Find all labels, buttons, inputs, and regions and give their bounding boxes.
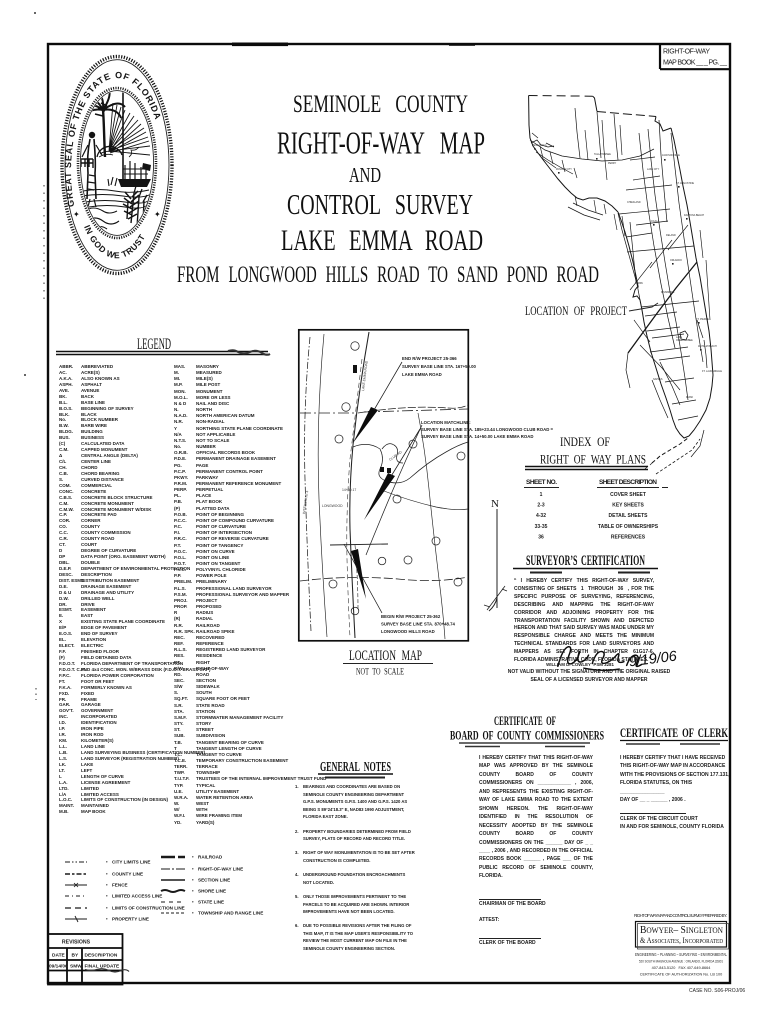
svg-text:RIGHT-OF-WAY LINE: RIGHT-OF-WAY LINE — [198, 867, 243, 872]
svg-text:PERRY: PERRY — [608, 162, 617, 165]
svg-text:NOT TO SCALE: NOT TO SCALE — [356, 668, 404, 678]
svg-text:LOCATION OF PROJECT: LOCATION OF PROJECT — [525, 303, 627, 318]
svg-text:& ASSOCIATES, INCORPORATED: & ASSOCIATES, INCORPORATED — [640, 935, 723, 945]
svg-text:ORLANDO: ORLANDO — [670, 259, 682, 262]
svg-text:SURVEY BASE LINE STA. 870+48.7: SURVEY BASE LINE STA. 870+48.74 — [381, 622, 456, 627]
svg-text:14+50.17: 14+50.17 — [342, 488, 356, 492]
svg-text:MAP BOOK __ _ PG. __: MAP BOOK __ _ PG. __ — [663, 60, 727, 67]
svg-text:TALLAHASSEE: TALLAHASSEE — [594, 153, 611, 156]
svg-text:✦: ✦ — [154, 210, 161, 219]
svg-text:LAKE CITY: LAKE CITY — [647, 168, 660, 171]
svg-text:RIGHT-OF-WAY MAP: RIGHT-OF-WAY MAP — [277, 125, 485, 161]
svg-text:REFERENCES: REFERENCES — [611, 534, 646, 540]
svg-text:SHEET DESCRIPTION: SHEET DESCRIPTION — [599, 479, 657, 486]
svg-text:SURVEY BASE LINE STA. 14+50.00: SURVEY BASE LINE STA. 14+50.00 LAKE EMMA… — [421, 434, 533, 439]
svg-text:TOWNSHIP AND RANGE LINE: TOWNSHIP AND RANGE LINE — [198, 911, 263, 916]
svg-text:•: • — [106, 917, 108, 922]
svg-text:CERTIFICATE OF: CERTIFICATE OF — [494, 714, 556, 728]
svg-text:BEGIN R/W PROJECT 25-362: BEGIN R/W PROJECT 25-362 — [381, 614, 441, 619]
svg-text:SMW: SMW — [70, 964, 82, 970]
svg-text:REVISIONS: REVISIONS — [62, 940, 91, 946]
svg-text:•: • — [192, 867, 194, 872]
svg-text:•: • — [106, 872, 108, 877]
svg-text:PROPERTY LINE: PROPERTY LINE — [112, 917, 149, 922]
svg-text:NAPLES: NAPLES — [653, 378, 663, 381]
svg-text:END R/W PROJECT 25-366: END R/W PROJECT 25-366 — [402, 356, 457, 361]
svg-text:CITY LIMITS LINE: CITY LIMITS LINE — [112, 860, 150, 865]
svg-text:•: • — [106, 883, 108, 888]
svg-text:1: 1 — [540, 492, 543, 498]
svg-text:LAKE EMMA ROAD: LAKE EMMA ROAD — [361, 360, 369, 391]
svg-text:CERTIFICATE OF AUTHORIZATION N: CERTIFICATE OF AUTHORIZATION No. LB 100 — [640, 973, 723, 977]
svg-text:407-843-5120 FAX 407-649-866: 407-843-5120 FAX 407-649-8664 — [652, 966, 711, 970]
svg-text:LAKE EMMA ROAD: LAKE EMMA ROAD — [402, 372, 442, 377]
svg-text:MIAMI: MIAMI — [686, 396, 693, 399]
svg-text:LOCATION MATCHLINE:: LOCATION MATCHLINE: — [421, 420, 471, 425]
svg-text:520 SOUTH MAGNOLIA AVENUE : OR: 520 SOUTH MAGNOLIA AVENUE : ORLANDO, FLO… — [639, 960, 723, 964]
svg-text:DELAND: DELAND — [666, 234, 676, 237]
svg-text:•: • — [106, 906, 108, 911]
svg-text:CASE NO. S06-PROJ/06: CASE NO. S06-PROJ/06 — [689, 988, 745, 994]
svg-text:TABLE OF OWNERSHIPS: TABLE OF OWNERSHIPS — [598, 524, 659, 530]
svg-text:DETAIL SHEETS: DETAIL SHEETS — [609, 513, 649, 519]
svg-text:LIMITED ACCESS LINE: LIMITED ACCESS LINE — [112, 894, 162, 899]
svg-text:ST. AUGUSTINE: ST. AUGUSTINE — [676, 182, 694, 185]
svg-text:•: • — [192, 855, 194, 860]
svg-text:DATE: DATE — [52, 953, 66, 959]
svg-text:RIGHT OF WAY MAP AND CONTROL S: RIGHT OF WAY MAP AND CONTROL SURVEY PREP… — [634, 913, 727, 918]
svg-text:GENERAL NOTES: GENERAL NOTES — [320, 760, 391, 775]
svg-text:BOARD OF COUNTY COMMISSIONERS: BOARD OF COUNTY COMMISSIONERS — [450, 729, 604, 743]
svg-text:LIMITS OF CONSTRUCTION LINE: LIMITS OF CONSTRUCTION LINE — [112, 906, 185, 911]
svg-text:LONGWOOD HILLS ROAD: LONGWOOD HILLS ROAD — [381, 629, 435, 634]
svg-text:FT. PIERCE: FT. PIERCE — [696, 318, 709, 321]
svg-text:SEMINOLE COUNTY: SEMINOLE COUNTY — [293, 91, 468, 118]
svg-text:2-3: 2-3 — [537, 503, 544, 509]
svg-text:AND: AND — [349, 163, 381, 187]
svg-text:COVER SHEET: COVER SHEET — [610, 492, 646, 498]
svg-text:SURVEY BASE LINE STA. 167+50.0: SURVEY BASE LINE STA. 167+50.00 — [402, 364, 477, 369]
svg-text:SURVEYOR’S CERTIFICATION: SURVEYOR’S CERTIFICATION — [526, 553, 645, 569]
svg-text:LAKE EMMA ROAD: LAKE EMMA ROAD — [281, 224, 483, 257]
svg-text:•: • — [192, 911, 194, 916]
svg-text:36: 36 — [538, 534, 544, 540]
svg-text:✦: ✦ — [73, 210, 80, 219]
svg-text:BY: BY — [72, 953, 79, 959]
svg-text:•: • — [192, 878, 194, 883]
svg-text:SHORE LINE: SHORE LINE — [198, 889, 226, 894]
svg-text:N: N — [491, 498, 499, 510]
svg-text:FT. LAUDERDALE: FT. LAUDERDALE — [702, 370, 722, 373]
svg-text:RIGHT OF WAY PLANS: RIGHT OF WAY PLANS — [540, 452, 646, 467]
svg-text:KEY SHEETS: KEY SHEETS — [612, 503, 644, 509]
svg-text:FENCE: FENCE — [112, 883, 128, 888]
svg-text:33-35: 33-35 — [535, 524, 548, 530]
svg-text:KISSIMMEE: KISSIMMEE — [661, 291, 675, 294]
svg-text:CHIEFLAND: CHIEFLAND — [627, 201, 641, 204]
svg-text:JACKSONVILLE: JACKSONVILLE — [662, 154, 680, 157]
svg-text:IN GOD WE TRUST: IN GOD WE TRUST — [82, 224, 147, 261]
svg-text:CERTIFICATE OF CLERK: CERTIFICATE OF CLERK — [620, 726, 728, 740]
svg-text:OKEECHOBEE: OKEECHOBEE — [676, 339, 693, 342]
svg-text:DAYTONA BEACH: DAYTONA BEACH — [684, 214, 704, 217]
svg-text:RIGHT-OF-WAY: RIGHT-OF-WAY — [663, 49, 710, 56]
svg-text:•: • — [192, 900, 194, 905]
svg-text:DESCRIPTION: DESCRIPTION — [85, 953, 118, 959]
svg-text:SHEET NO.: SHEET NO. — [526, 479, 557, 486]
svg-text:ENGINEERING – PLANNING – SURVE: ENGINEERING – PLANNING – SURVEYING – ENV… — [635, 952, 727, 957]
svg-text:SURVEY BASE LINE STA. 185+23.4: SURVEY BASE LINE STA. 185+23.44 LONGWOOD… — [421, 427, 554, 432]
svg-text:RAILROAD: RAILROAD — [198, 855, 223, 860]
svg-text:•: • — [106, 894, 108, 899]
svg-text:LOCATION MAP: LOCATION MAP — [349, 648, 422, 664]
svg-text:4-32: 4-32 — [536, 513, 546, 519]
svg-text:•: • — [192, 889, 194, 894]
svg-text:LEGEND: LEGEND — [137, 336, 171, 353]
svg-text:COUNTY LINE: COUNTY LINE — [112, 872, 143, 877]
svg-text:PENSACOLA: PENSACOLA — [532, 144, 547, 147]
svg-text:W. PALM BEACH: W. PALM BEACH — [698, 345, 717, 348]
svg-text:•: • — [106, 860, 108, 865]
svg-text:FROM LONGWOOD HILLS ROAD TO SA: FROM LONGWOOD HILLS ROAD TO SAND POND RO… — [177, 262, 599, 287]
svg-text:SECTION LINE: SECTION LINE — [198, 878, 230, 883]
svg-text:INDEX OF: INDEX OF — [560, 434, 610, 449]
svg-text:STATE LINE: STATE LINE — [198, 900, 224, 905]
svg-text:CONTROL SURVEY: CONTROL SURVEY — [287, 189, 473, 221]
svg-text:09/14/06: 09/14/06 — [49, 964, 68, 970]
